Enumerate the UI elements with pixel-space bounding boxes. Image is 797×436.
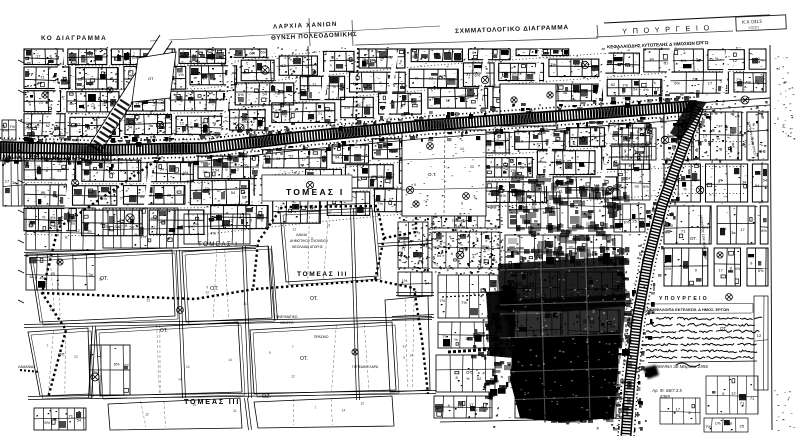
svg-text:7%: 7%	[386, 176, 392, 181]
svg-text:62: 62	[124, 363, 129, 368]
svg-text:3a: 3a	[29, 274, 34, 279]
svg-text:%: %	[332, 84, 336, 89]
svg-text:6%: 6%	[674, 80, 680, 85]
svg-text:ΔΗΜΟΤΙΚΟΥ ΣΧΟΛΕΙΟΥ: ΔΗΜΟΤΙΚΟΥ ΣΧΟΛΕΙΟΥ	[290, 239, 329, 243]
svg-text:71: 71	[40, 75, 45, 80]
svg-text:34: 34	[380, 55, 385, 60]
svg-text:4%: 4%	[347, 57, 353, 62]
svg-text:12: 12	[733, 58, 738, 63]
svg-text:ΟΤ.: ΟΤ.	[210, 286, 219, 292]
svg-text:6%: 6%	[761, 228, 767, 233]
svg-text:54: 54	[215, 167, 220, 172]
svg-text:54: 54	[140, 194, 145, 199]
svg-text:14: 14	[460, 147, 464, 151]
svg-text:%: %	[719, 177, 723, 182]
svg-text:4%: 4%	[496, 165, 502, 170]
svg-text:ΥΠΟΥΡΓΕΙΟ: ΥΠΟΥΡΓΕΙΟ	[659, 296, 709, 302]
svg-text:14: 14	[228, 358, 232, 362]
svg-text:ΑΘΗΝΑ 30 Μαρτίου 1956: ΑΘΗΝΑ 30 Μαρτίου 1956	[655, 364, 708, 369]
svg-text:ΤΟΜΕΑΣ ΙΙΙ: ΤΟΜΕΑΣ ΙΙΙ	[184, 397, 240, 406]
svg-text:ΟΤ: ΟΤ	[148, 76, 154, 81]
svg-text:7%: 7%	[28, 222, 34, 227]
svg-text:17: 17	[224, 223, 229, 228]
svg-text:1%: 1%	[622, 83, 628, 88]
svg-text:25: 25	[362, 57, 367, 62]
svg-text:4%: 4%	[500, 193, 506, 198]
svg-text:1%: 1%	[580, 163, 586, 168]
svg-text:%: %	[42, 215, 46, 220]
svg-text:14: 14	[342, 408, 346, 412]
svg-text:7%: 7%	[168, 229, 174, 234]
svg-text:1: 1	[780, 92, 782, 96]
svg-text:ΟΤ.: ΟΤ.	[310, 296, 318, 302]
svg-text:6%: 6%	[646, 140, 652, 145]
svg-text:ΤΟΜΕΑΣ Ι: ΤΟΜΕΑΣ Ι	[198, 241, 238, 248]
svg-text:3a: 3a	[391, 149, 396, 154]
svg-text:17: 17	[683, 263, 688, 268]
svg-text:ΟΤ.: ΟΤ.	[690, 236, 697, 241]
svg-text:54: 54	[755, 183, 760, 188]
svg-text:ΟΤ.: ΟΤ.	[300, 356, 308, 362]
svg-text:62: 62	[477, 376, 482, 381]
svg-text:3a: 3a	[12, 180, 17, 185]
svg-text:%: %	[632, 141, 636, 146]
svg-text:6%: 6%	[758, 268, 764, 273]
svg-text:9: 9	[414, 183, 416, 187]
svg-text:3a: 3a	[114, 224, 119, 229]
svg-text:4%: 4%	[160, 219, 166, 224]
svg-text:71: 71	[135, 101, 140, 106]
svg-text:5%: 5%	[571, 136, 577, 141]
svg-text:71: 71	[68, 414, 73, 419]
svg-text:12: 12	[361, 402, 365, 406]
svg-text:23: 23	[470, 165, 474, 169]
svg-text:ΝΕΟΛΑΙΑΣ ΑΓΩΓΗΣ: ΝΕΟΛΑΙΑΣ ΑΓΩΓΗΣ	[292, 245, 323, 249]
svg-text:34: 34	[276, 156, 281, 161]
svg-text:6%: 6%	[260, 50, 266, 55]
svg-text:%: %	[683, 187, 687, 192]
svg-text:3a: 3a	[87, 229, 92, 234]
svg-text:ΠΡΑΣΙΝΟ: ΠΡΑΣΙΝΟ	[314, 335, 329, 339]
svg-text:4%: 4%	[436, 405, 442, 410]
svg-text:5%: 5%	[44, 420, 50, 425]
svg-text:62: 62	[366, 103, 371, 108]
svg-text:25: 25	[245, 164, 250, 169]
svg-text:6%: 6%	[665, 266, 671, 271]
svg-text:25: 25	[739, 423, 744, 428]
svg-text:ΠΑΙΔΙΚΗ: ΠΑΙΔΙΚΗ	[452, 219, 466, 223]
svg-text:25: 25	[567, 159, 572, 164]
svg-text:54: 54	[40, 229, 45, 234]
svg-text:6%: 6%	[556, 158, 562, 163]
svg-text:25: 25	[167, 193, 172, 198]
svg-text:17: 17	[259, 117, 264, 122]
svg-text:3a: 3a	[93, 369, 98, 374]
svg-text:34: 34	[88, 53, 93, 58]
svg-text:3a: 3a	[148, 123, 153, 128]
svg-text:25: 25	[378, 174, 383, 179]
svg-text:1%: 1%	[2, 127, 8, 132]
svg-text:3a: 3a	[731, 230, 736, 235]
svg-text:17: 17	[302, 157, 307, 162]
svg-text:%: %	[134, 232, 138, 237]
svg-text:34: 34	[574, 63, 579, 68]
svg-text:7: 7	[292, 345, 294, 349]
svg-text:ΟΤ.: ΟΤ.	[58, 352, 65, 357]
svg-text:3a: 3a	[192, 53, 197, 58]
svg-text:ΟΤ.: ΟΤ.	[575, 248, 582, 253]
svg-text:34: 34	[57, 168, 62, 173]
svg-text:17: 17	[98, 55, 103, 60]
svg-text:4%: 4%	[151, 216, 157, 221]
svg-text:4%: 4%	[455, 53, 461, 58]
svg-text:ΧΑΡΑ: ΧΑΡΑ	[455, 225, 465, 229]
svg-text:1%: 1%	[457, 404, 463, 409]
svg-text:7%: 7%	[736, 77, 742, 82]
svg-text:3a: 3a	[241, 119, 246, 124]
svg-text:7: 7	[46, 344, 48, 348]
svg-text:62: 62	[611, 82, 616, 87]
svg-text:14: 14	[186, 365, 190, 369]
svg-text:71: 71	[750, 396, 755, 401]
svg-text:23: 23	[327, 224, 331, 228]
svg-text:4%: 4%	[210, 231, 216, 236]
svg-text:62: 62	[625, 153, 630, 158]
svg-text:17: 17	[708, 81, 713, 86]
svg-text:12: 12	[654, 86, 659, 91]
svg-text:ΤΟΜΕΑΣ Ι: ΤΟΜΕΑΣ Ι	[286, 187, 344, 197]
svg-text:1%: 1%	[204, 186, 210, 191]
svg-text:6%: 6%	[475, 72, 481, 77]
svg-text:3a: 3a	[562, 90, 567, 95]
svg-text:%: %	[466, 376, 470, 381]
svg-text:7%: 7%	[692, 77, 698, 82]
svg-text:Αρ. Φ. 66/7.3.5: Αρ. Φ. 66/7.3.5	[651, 388, 682, 393]
svg-text:3a: 3a	[88, 272, 93, 277]
svg-text:71: 71	[558, 189, 563, 194]
svg-text:6%: 6%	[238, 92, 244, 97]
svg-text:ΟΤ.: ΟΤ.	[466, 370, 473, 375]
svg-text:1%: 1%	[715, 420, 721, 425]
svg-text:4%: 4%	[639, 144, 645, 149]
svg-text:7%: 7%	[377, 201, 383, 206]
svg-text:17: 17	[718, 267, 723, 272]
svg-text:%: %	[415, 75, 419, 80]
svg-text:Ο.Τ.: Ο.Τ.	[428, 172, 436, 177]
svg-text:4: 4	[778, 67, 780, 71]
svg-text:1%: 1%	[360, 175, 366, 180]
svg-text:71: 71	[318, 111, 323, 116]
svg-text:17: 17	[469, 402, 474, 407]
svg-text:ΟΤ.: ΟΤ.	[100, 276, 108, 282]
svg-text:12: 12	[53, 224, 58, 229]
svg-text:54: 54	[231, 190, 236, 195]
svg-text:4%: 4%	[745, 79, 751, 84]
svg-text:3a: 3a	[634, 184, 639, 189]
svg-text:%: %	[715, 56, 719, 61]
svg-text:54: 54	[633, 87, 638, 92]
svg-text:14: 14	[409, 354, 413, 358]
svg-text:23: 23	[147, 298, 151, 302]
svg-text:12: 12	[429, 76, 434, 81]
svg-text:ΛΑΜΑΝΙΑΣ: ΛΑΜΑΝΙΑΣ	[18, 365, 35, 369]
svg-text:3a: 3a	[209, 97, 214, 102]
svg-text:31: 31	[403, 345, 407, 349]
svg-text:54: 54	[77, 418, 82, 423]
svg-text:6%: 6%	[681, 58, 687, 63]
svg-text:17: 17	[5, 179, 10, 184]
svg-text:1%: 1%	[178, 72, 184, 77]
svg-text:4%: 4%	[327, 108, 333, 113]
svg-text:ΟΤ.: ΟΤ.	[720, 326, 727, 331]
svg-text:Κ.Χ 0313: Κ.Χ 0313	[742, 19, 762, 26]
svg-text:6%: 6%	[188, 224, 194, 229]
svg-text:12: 12	[145, 413, 149, 417]
svg-text:12: 12	[281, 63, 286, 68]
svg-text:17: 17	[703, 134, 708, 139]
svg-text:8: 8	[777, 117, 779, 121]
svg-text:34: 34	[160, 166, 165, 171]
svg-text:7%: 7%	[431, 96, 437, 101]
svg-text:34: 34	[106, 224, 111, 229]
svg-text:ΠΝΕΥΜΑΤΙΚΟ: ΠΝΕΥΜΑΤΙΚΟ	[276, 315, 298, 319]
svg-text:71: 71	[76, 192, 81, 197]
svg-text:34: 34	[649, 57, 654, 62]
svg-text:%: %	[593, 64, 597, 69]
svg-text:7: 7	[314, 406, 316, 410]
svg-text:31: 31	[233, 409, 237, 413]
svg-text:12: 12	[757, 333, 762, 338]
svg-text:17: 17	[729, 132, 734, 137]
svg-text:17: 17	[465, 336, 470, 341]
svg-text:ΤΟΜΕΑΣ ΙΙΙ: ΤΟΜΕΑΣ ΙΙΙ	[297, 271, 348, 278]
svg-text:54: 54	[62, 75, 67, 80]
svg-text:25: 25	[137, 120, 142, 125]
svg-text:7%: 7%	[461, 300, 467, 305]
svg-text:ΟΤ.: ΟΤ.	[160, 328, 168, 334]
svg-text:7%: 7%	[439, 298, 445, 303]
svg-text:9: 9	[206, 285, 208, 289]
svg-text:9: 9	[403, 356, 405, 360]
svg-text:3a: 3a	[371, 178, 376, 183]
svg-text:%: %	[481, 404, 485, 409]
svg-text:4%: 4%	[449, 77, 455, 82]
svg-text:17: 17	[740, 227, 745, 232]
svg-text:54: 54	[335, 155, 340, 160]
svg-text:54: 54	[763, 178, 768, 183]
svg-text:54: 54	[503, 167, 508, 172]
svg-text:71: 71	[740, 401, 745, 406]
svg-text:12: 12	[151, 225, 156, 230]
svg-text:34: 34	[425, 281, 430, 286]
svg-text:12: 12	[626, 63, 631, 68]
svg-text:ΛΑΙΚΑΙ: ΛΑΙΚΑΙ	[296, 233, 307, 237]
svg-text:12: 12	[755, 56, 760, 61]
svg-text:%: %	[585, 89, 589, 94]
svg-text:ΧΩΟΠ: ΧΩΟΠ	[748, 26, 759, 30]
svg-text:12: 12	[291, 374, 295, 378]
svg-text:%: %	[640, 216, 644, 221]
svg-text:5%: 5%	[114, 362, 120, 367]
svg-text:3a: 3a	[520, 165, 525, 170]
svg-text:%: %	[454, 337, 458, 342]
svg-text:34: 34	[742, 179, 747, 184]
svg-text:17: 17	[389, 197, 394, 202]
svg-text:4%: 4%	[643, 87, 649, 92]
svg-text:71: 71	[312, 82, 317, 87]
svg-text:6%: 6%	[721, 226, 727, 231]
svg-text:7%: 7%	[9, 124, 15, 129]
svg-text:71: 71	[681, 228, 686, 233]
svg-text:12: 12	[234, 167, 239, 172]
svg-text:54: 54	[497, 142, 502, 147]
svg-text:5%: 5%	[643, 184, 649, 189]
svg-text:9: 9	[269, 351, 271, 355]
svg-text:14: 14	[178, 377, 182, 381]
svg-text:12: 12	[731, 390, 736, 395]
svg-text:6%: 6%	[735, 266, 741, 271]
svg-text:23: 23	[74, 355, 78, 359]
svg-text:1%: 1%	[421, 54, 427, 59]
svg-text:25: 25	[39, 99, 44, 104]
svg-text:1%: 1%	[502, 71, 508, 76]
svg-text:54: 54	[626, 175, 631, 180]
svg-text:ΟΖ.: ΟΖ.	[262, 394, 271, 400]
svg-text:71: 71	[466, 72, 471, 77]
svg-text:6%: 6%	[490, 205, 496, 210]
svg-text:1%: 1%	[171, 167, 177, 172]
svg-text:ΚΟ ΔΙΑΓΡΑΜΜΑ: ΚΟ ΔΙΑΓΡΑΜΜΑ	[41, 35, 107, 42]
svg-text:25: 25	[632, 218, 637, 223]
svg-text:1%: 1%	[370, 57, 376, 62]
svg-text:6365: 6365	[660, 394, 670, 399]
svg-text:ΟΤ.: ΟΤ.	[430, 226, 437, 231]
svg-text:12: 12	[293, 227, 297, 231]
svg-text:ΚΕΝΤΡΟ: ΚΕΝΤΡΟ	[280, 321, 294, 325]
svg-text:12: 12	[206, 291, 210, 295]
svg-text:ΓΗΠΕΔΙΚΗ ΧΑΡΑ: ΓΗΠΕΔΙΚΗ ΧΑΡΑ	[352, 365, 379, 369]
svg-text:17: 17	[676, 406, 681, 411]
svg-text:71: 71	[607, 59, 612, 64]
svg-text:12: 12	[180, 120, 185, 125]
svg-text:ΠΕΡΙΦΛΛΟΙΠΑ ΕΚΤΕΛΕΣΘ. Δ ΗΜΟΣ.: ΠΕΡΙΦΛΛΟΙΠΑ ΕΚΤΕΛΕΣΘ. Δ ΗΜΟΣ. ΕΡΓΩΝ	[647, 307, 729, 312]
svg-text:%: %	[101, 75, 105, 80]
svg-text:71: 71	[28, 72, 33, 77]
svg-text:34: 34	[574, 89, 579, 94]
svg-text:4%: 4%	[344, 105, 350, 110]
svg-text:4%: 4%	[50, 215, 56, 220]
svg-text:12: 12	[75, 228, 80, 233]
svg-text:1%: 1%	[141, 234, 147, 239]
